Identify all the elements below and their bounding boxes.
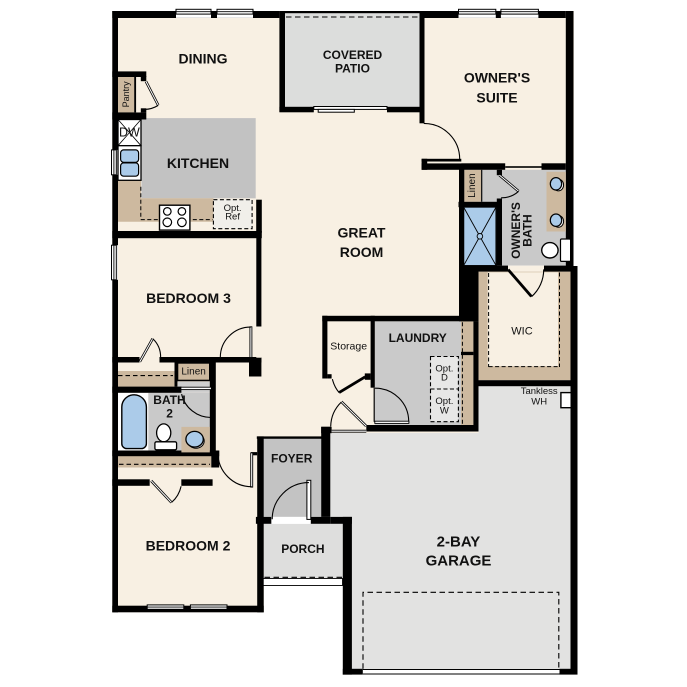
svg-text:PORCH: PORCH: [281, 542, 324, 556]
svg-text:ROOM: ROOM: [340, 244, 384, 260]
svg-text:GARAGE: GARAGE: [426, 553, 492, 570]
svg-text:OWNER'S: OWNER'S: [464, 70, 530, 86]
svg-text:2-BAY: 2-BAY: [437, 534, 481, 551]
svg-text:GREAT: GREAT: [338, 224, 386, 240]
svg-text:Linen: Linen: [467, 173, 478, 197]
svg-text:Storage: Storage: [330, 341, 367, 353]
svg-text:2: 2: [166, 407, 173, 421]
svg-text:D: D: [441, 373, 448, 384]
svg-text:BEDROOM 2: BEDROOM 2: [146, 538, 231, 554]
svg-text:Tankless: Tankless: [521, 386, 558, 397]
svg-text:WIC: WIC: [511, 326, 532, 338]
svg-text:FOYER: FOYER: [271, 452, 313, 466]
svg-text:Linen: Linen: [181, 367, 205, 378]
svg-text:BEDROOM 3: BEDROOM 3: [146, 290, 231, 306]
svg-text:BATH: BATH: [520, 214, 534, 246]
svg-text:SUITE: SUITE: [476, 90, 517, 106]
svg-text:DINING: DINING: [179, 51, 228, 67]
svg-text:Pantry: Pantry: [121, 81, 131, 108]
svg-text:DW: DW: [119, 126, 140, 140]
svg-text:Ref: Ref: [225, 211, 240, 222]
svg-text:BATH: BATH: [153, 393, 185, 407]
svg-text:KITCHEN: KITCHEN: [167, 155, 229, 171]
svg-text:LAUNDRY: LAUNDRY: [389, 331, 447, 345]
svg-text:W: W: [440, 406, 449, 417]
svg-text:WH: WH: [531, 396, 547, 407]
svg-text:PATIO: PATIO: [335, 62, 370, 76]
svg-text:COVERED: COVERED: [323, 48, 383, 62]
